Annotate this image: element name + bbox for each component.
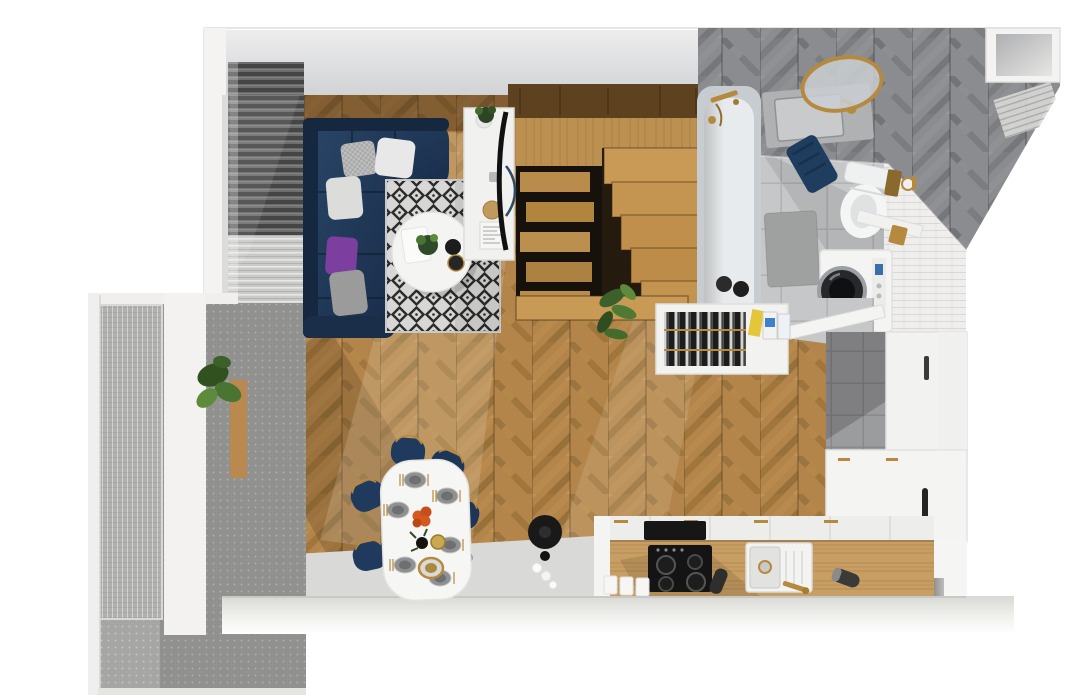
cabinet-handle: [924, 356, 929, 380]
balcony-top-wall: [88, 293, 238, 304]
oven-glass: [644, 521, 706, 540]
detergent-label: [765, 318, 775, 327]
black-bowl: [445, 239, 461, 255]
open-dish-drawer: [664, 312, 746, 366]
small-vase: [540, 551, 550, 561]
sofa-backrest-top: [303, 118, 449, 131]
washer-display: [875, 264, 883, 275]
floor-plan-stage: Living room Balcony: [0, 0, 1079, 700]
deco-ball-3: [549, 581, 557, 589]
balcony-bottom-frame: [98, 688, 306, 695]
canister: [604, 576, 617, 594]
bottom-wall: [222, 596, 1014, 634]
pillow-light-gray: [325, 176, 364, 221]
deco-ball: [532, 563, 542, 573]
gold-jar: [431, 535, 445, 549]
under-stair-shelving: [516, 166, 602, 318]
bath-mat: [764, 211, 820, 288]
deco-ball-2: [541, 571, 551, 581]
counter-handle-3: [754, 520, 768, 523]
kitchen-counter: Kitchen: [594, 516, 934, 596]
balcony-glass-door: [98, 305, 162, 619]
brass-handle: [838, 458, 850, 461]
canister-2: [620, 577, 633, 595]
dark-bottle: [416, 537, 428, 549]
staircase: Staircase: [508, 84, 714, 341]
pillow-gray: [328, 269, 368, 317]
counter-handle: [614, 520, 628, 523]
sofa-armrest: [303, 316, 395, 338]
pillow-checkered: [340, 140, 378, 178]
floor-plan-render: Living room Balcony: [0, 0, 1079, 700]
wall-niche: [986, 28, 1060, 82]
stairs-upper-platform: [508, 84, 714, 118]
tv-sideboard: [464, 106, 515, 260]
balcony-left-wall: [88, 293, 100, 695]
brass-handle-2: [886, 458, 898, 461]
bath-bottle: [716, 276, 732, 292]
cooktop: [648, 545, 712, 592]
pillow-purple: [325, 236, 359, 276]
counter-handle-4: [824, 520, 838, 523]
kitchen-sink: [746, 543, 812, 595]
black-bowl-gold: [448, 255, 464, 271]
sofa-backrest-left: [303, 118, 318, 338]
balcony: Balcony: [88, 293, 306, 695]
bath-bottle-2: [733, 281, 749, 297]
dish-drawer-unit: [656, 304, 790, 374]
pillow-white: [374, 137, 416, 179]
detergent-box: [778, 314, 790, 339]
sink-drain: [759, 561, 771, 573]
balcony-divider-wall: [164, 293, 206, 635]
bathtub: [697, 86, 761, 332]
canister-3: [636, 578, 649, 596]
